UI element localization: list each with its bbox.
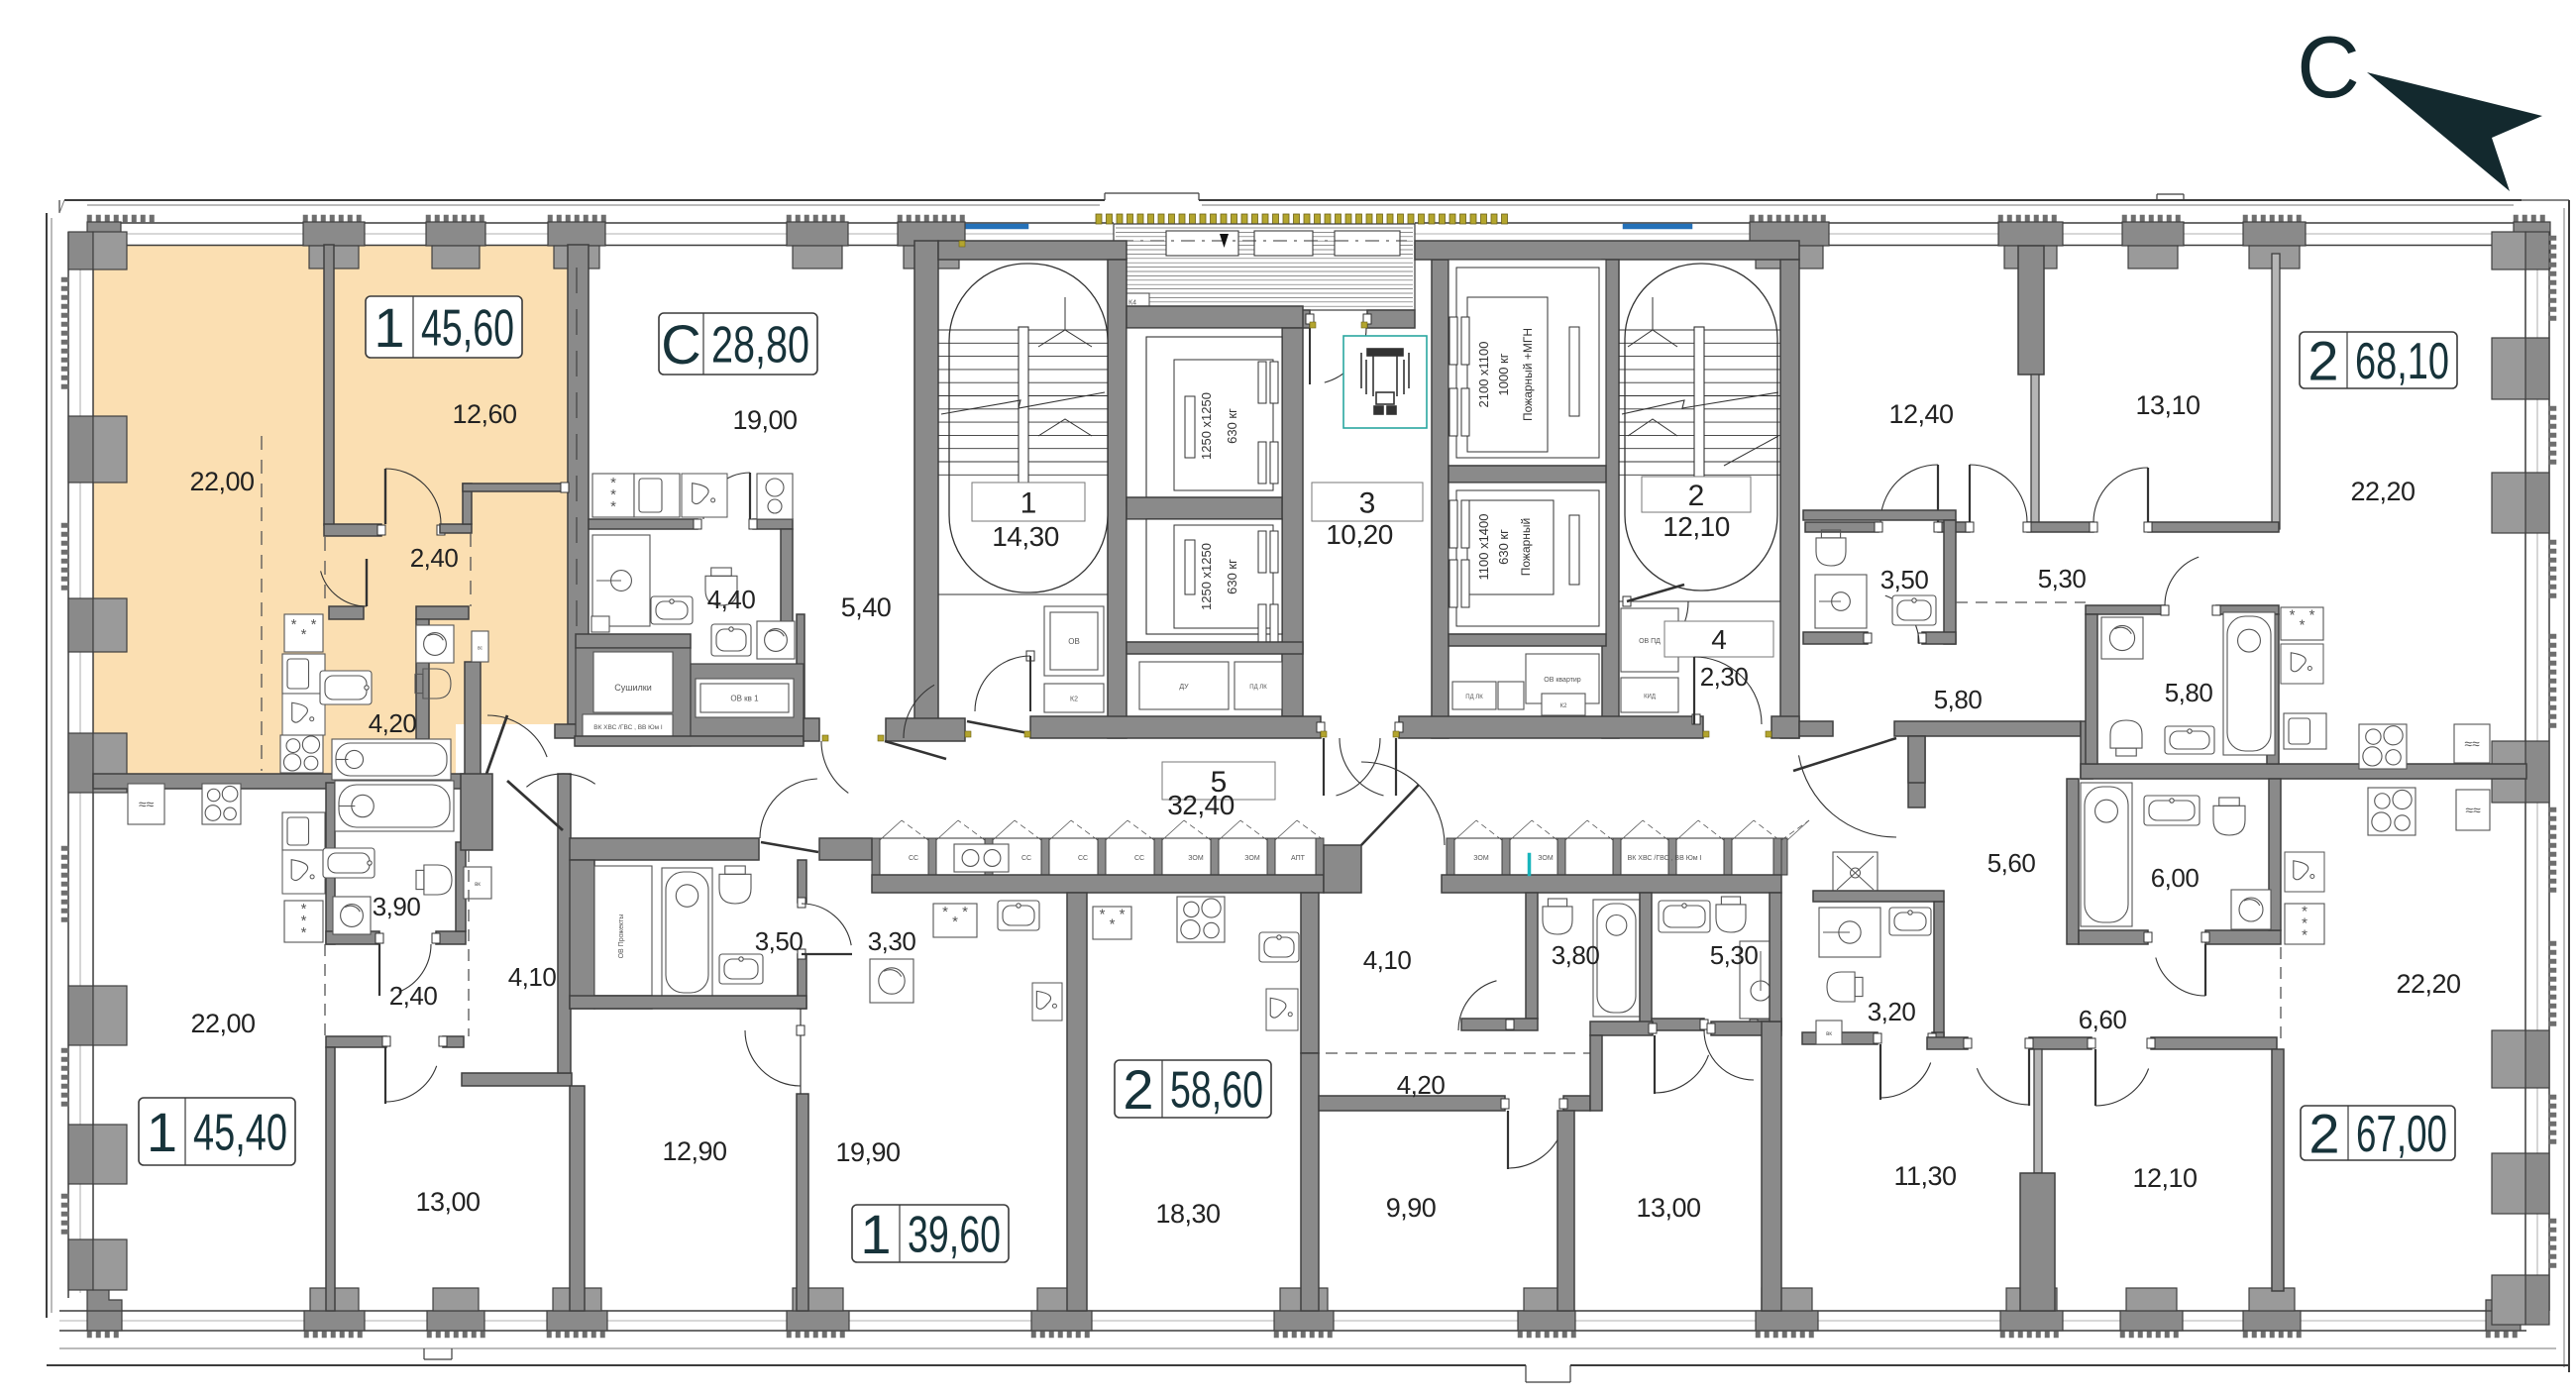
svg-text:11,30: 11,30 — [1893, 1161, 1956, 1191]
svg-text:К2: К2 — [1070, 697, 1078, 703]
svg-text:5,60: 5,60 — [1987, 848, 2036, 878]
svg-text:4,10: 4,10 — [508, 962, 557, 992]
svg-text:6,60: 6,60 — [2079, 1005, 2127, 1034]
svg-text:3,20: 3,20 — [1868, 997, 1916, 1026]
svg-text:*: * — [962, 904, 968, 920]
svg-text:ПД ЛК: ПД ЛК — [1465, 695, 1483, 700]
svg-text:22,20: 22,20 — [2396, 969, 2460, 999]
svg-text:*: * — [1110, 916, 1116, 933]
svg-text:ОВ ПД: ОВ ПД — [1639, 638, 1661, 645]
svg-text:12,90: 12,90 — [662, 1136, 726, 1166]
svg-text:*: * — [301, 924, 307, 941]
svg-text:5,30: 5,30 — [2038, 564, 2087, 593]
svg-text:1: 1 — [1020, 486, 1037, 519]
svg-text:12,10: 12,10 — [1663, 511, 1730, 542]
svg-text:12,60: 12,60 — [452, 399, 516, 429]
svg-text:5,40: 5,40 — [841, 592, 892, 622]
svg-text:4,20: 4,20 — [369, 708, 417, 738]
svg-text:45,40: 45,40 — [193, 1105, 287, 1162]
svg-text:C: C — [2297, 18, 2360, 116]
svg-text:19,90: 19,90 — [835, 1137, 900, 1167]
svg-text:630 кг: 630 кг — [1496, 529, 1511, 565]
svg-text:13,00: 13,00 — [415, 1187, 480, 1217]
svg-text:Пожарный: Пожарный — [1519, 518, 1533, 577]
svg-text:*: * — [291, 616, 297, 633]
svg-text:10,20: 10,20 — [1326, 519, 1393, 550]
svg-text:13,10: 13,10 — [2135, 390, 2200, 420]
svg-text:2,30: 2,30 — [1700, 662, 1749, 692]
svg-text:2: 2 — [2308, 1103, 2339, 1165]
svg-text:3: 3 — [1359, 486, 1376, 519]
svg-text:5,80: 5,80 — [1934, 685, 1983, 714]
svg-text:4,10: 4,10 — [1363, 945, 1412, 975]
svg-text:ЗОМ: ЗОМ — [1244, 855, 1260, 862]
svg-text:*: * — [301, 626, 307, 643]
svg-text:ПД ЛК: ПД ЛК — [1249, 685, 1267, 691]
svg-text:1250 х1250: 1250 х1250 — [1199, 543, 1214, 610]
svg-text:С: С — [661, 313, 700, 376]
svg-text:*: * — [1100, 907, 1106, 923]
svg-text:68,10: 68,10 — [2355, 333, 2449, 390]
svg-text:1: 1 — [147, 1101, 177, 1163]
svg-text:ОВ кв 1: ОВ кв 1 — [730, 695, 759, 703]
svg-text:2: 2 — [2308, 330, 2338, 392]
svg-text:2100 х1100: 2100 х1100 — [1476, 342, 1491, 408]
svg-text:≈≈: ≈≈ — [139, 797, 155, 812]
svg-text:12,10: 12,10 — [2132, 1163, 2197, 1193]
svg-text:*: * — [2302, 927, 2308, 944]
svg-text:1000 кг: 1000 кг — [1496, 353, 1511, 395]
svg-text:3,90: 3,90 — [373, 892, 421, 921]
svg-text:СС: СС — [1021, 855, 1031, 862]
svg-text:ЗОМ: ЗОМ — [1538, 855, 1554, 862]
svg-text:*: * — [942, 904, 948, 920]
svg-text:58,60: 58,60 — [1170, 1062, 1263, 1120]
svg-text:5,30: 5,30 — [1710, 940, 1759, 970]
svg-text:1: 1 — [860, 1203, 891, 1265]
svg-text:ДУ: ДУ — [1179, 684, 1189, 691]
svg-text:Пожарный +МГН: Пожарный +МГН — [1521, 328, 1535, 421]
svg-text:2: 2 — [1688, 480, 1705, 512]
svg-text:АПТ: АПТ — [1291, 855, 1306, 862]
svg-text:вк: вк — [1826, 1031, 1832, 1037]
svg-text:630 кг: 630 кг — [1225, 408, 1239, 444]
svg-text:СС: СС — [1078, 855, 1088, 862]
svg-text:2,40: 2,40 — [389, 981, 438, 1011]
svg-text:2,40: 2,40 — [410, 543, 459, 573]
svg-text:5,80: 5,80 — [2165, 678, 2213, 707]
svg-text:≈≈: ≈≈ — [2464, 736, 2480, 752]
svg-text:32,40: 32,40 — [1167, 790, 1234, 820]
svg-text:18,30: 18,30 — [1155, 1199, 1220, 1229]
svg-text:22,00: 22,00 — [189, 467, 254, 496]
svg-text:3,80: 3,80 — [1552, 940, 1600, 970]
svg-text:6,00: 6,00 — [2151, 863, 2200, 893]
svg-text:2: 2 — [1123, 1058, 1153, 1121]
svg-text:13,00: 13,00 — [1636, 1193, 1700, 1223]
svg-text:ЗОМ: ЗОМ — [1473, 855, 1489, 862]
svg-text:*: * — [2290, 607, 2296, 624]
svg-text:3,50: 3,50 — [1880, 565, 1929, 594]
svg-text:14,30: 14,30 — [992, 521, 1059, 552]
svg-text:22,20: 22,20 — [2350, 477, 2415, 506]
svg-text:КИД: КИД — [1644, 695, 1656, 700]
svg-text:*: * — [2300, 617, 2306, 634]
svg-text:4: 4 — [1711, 624, 1727, 655]
svg-text:ЗОМ: ЗОМ — [1188, 855, 1204, 862]
svg-text:*: * — [2309, 607, 2315, 624]
svg-text:ОВ: ОВ — [1068, 637, 1080, 646]
svg-text:45,60: 45,60 — [421, 300, 514, 358]
svg-text:СС: СС — [1134, 855, 1144, 862]
svg-text:39,60: 39,60 — [908, 1207, 1001, 1264]
svg-text:вк: вк — [475, 882, 481, 888]
svg-text:ВК ХВС /ГВС , ВВ Юм I: ВК ХВС /ГВС , ВВ Юм I — [1628, 855, 1702, 862]
svg-text:3,30: 3,30 — [868, 926, 916, 956]
svg-text:вс: вс — [478, 646, 483, 652]
svg-text:4,40: 4,40 — [707, 585, 756, 614]
svg-text:*: * — [610, 498, 616, 515]
svg-text:12,40: 12,40 — [1888, 399, 1953, 429]
svg-text:ОВ квартир: ОВ квартир — [1544, 677, 1581, 684]
svg-text:630 кг: 630 кг — [1225, 559, 1239, 594]
svg-text:*: * — [952, 914, 958, 930]
svg-text:ВК ХВС /ГВС , ВВ Юм I: ВК ХВС /ГВС , ВВ Юм I — [593, 724, 663, 731]
svg-text:К2: К2 — [1560, 703, 1567, 709]
svg-text:1250 х1250: 1250 х1250 — [1199, 392, 1214, 460]
svg-text:22,00: 22,00 — [190, 1009, 255, 1038]
svg-text:1: 1 — [374, 296, 404, 359]
svg-text:Сушилки: Сушилки — [614, 683, 651, 693]
svg-text:*: * — [311, 616, 317, 633]
svg-text:≈≈: ≈≈ — [2465, 803, 2481, 818]
svg-text:28,80: 28,80 — [711, 317, 809, 375]
svg-text:19,00: 19,00 — [732, 405, 797, 435]
svg-text:*: * — [1120, 907, 1126, 923]
svg-text:3,50: 3,50 — [755, 926, 804, 956]
svg-text:СС: СС — [909, 855, 918, 862]
svg-text:4,20: 4,20 — [1397, 1070, 1446, 1100]
svg-text:9,90: 9,90 — [1386, 1193, 1437, 1223]
svg-text:67,00: 67,00 — [2356, 1106, 2447, 1163]
svg-text:ОВ Прожекты: ОВ Прожекты — [618, 914, 625, 959]
svg-text:1100 х1400: 1100 х1400 — [1476, 514, 1491, 581]
